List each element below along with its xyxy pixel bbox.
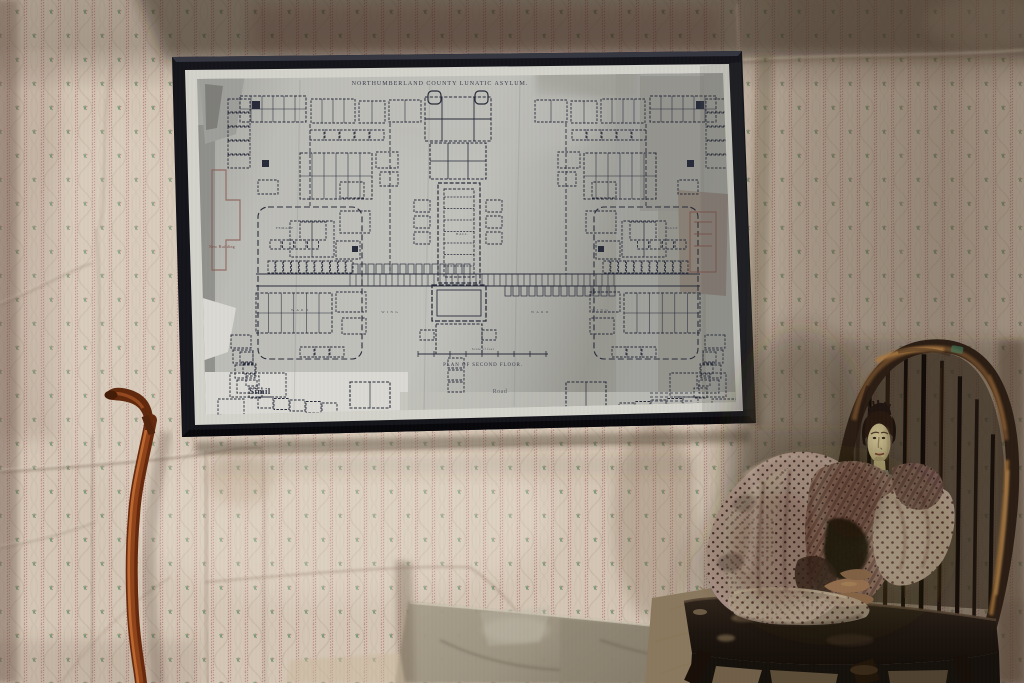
svg-text:Scale of feet: Scale of feet	[472, 347, 494, 351]
svg-text:FEMALE: FEMALE	[276, 226, 294, 230]
svg-text:HALL: HALL	[456, 232, 468, 236]
svg-text:New Building: New Building	[209, 244, 235, 249]
svg-text:PLAN OF SECOND FLOOR.: PLAN OF SECOND FLOOR.	[443, 363, 523, 368]
